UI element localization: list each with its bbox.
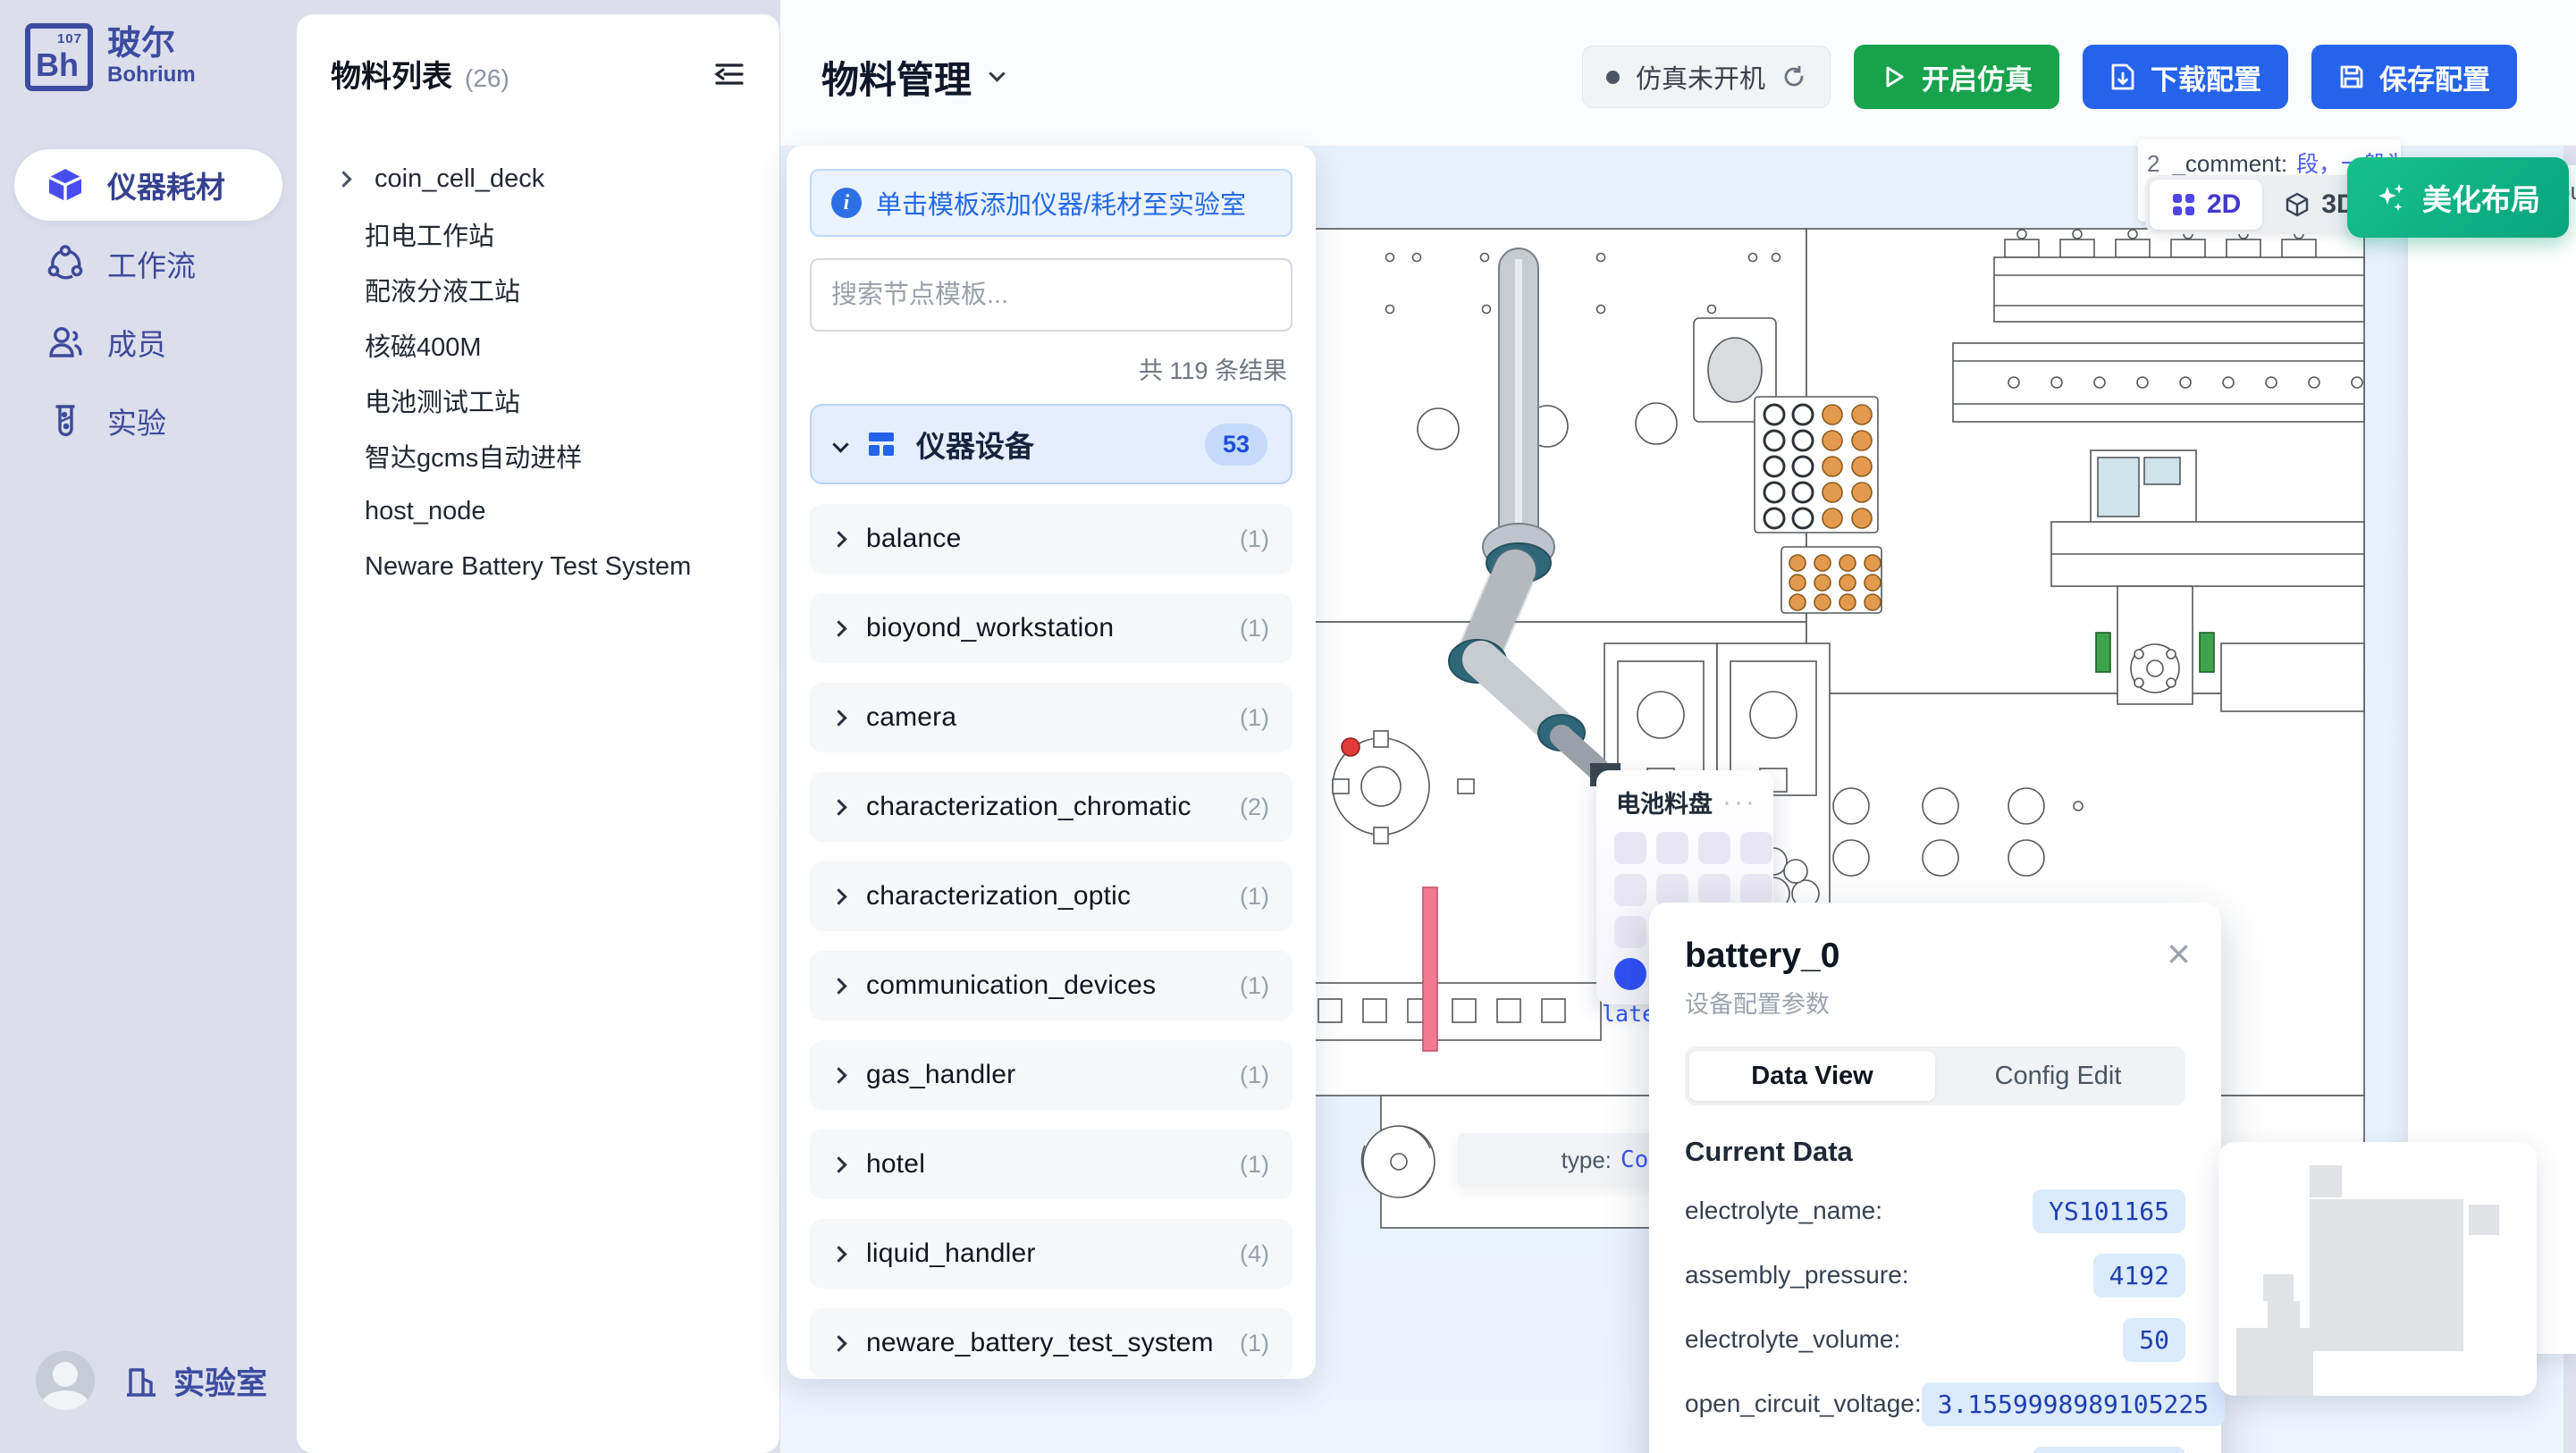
template-item-hotel[interactable]: hotel (1)	[810, 1130, 1292, 1199]
chevron-right-icon	[830, 978, 846, 994]
popup-tabs: Data View Config Edit	[1685, 1046, 2185, 1105]
template-count: (1)	[1240, 1151, 1269, 1179]
template-item-balance[interactable]: balance (1)	[810, 504, 1292, 574]
chevron-right-icon	[830, 620, 846, 636]
tab-config-edit[interactable]: Config Edit	[1935, 1051, 2181, 1101]
minimap-block	[2263, 1274, 2294, 1301]
material-item[interactable]: Neware Battery Test System	[331, 539, 745, 594]
brand-name-zh: 玻尔	[107, 27, 196, 63]
template-item-bioyond-workstation[interactable]: bioyond_workstation (1)	[810, 593, 1292, 663]
tooltip-line-number: 2	[2147, 150, 2159, 177]
template-name: camera	[866, 702, 956, 733]
sidebar-nav: 仪器耗材 工作流 成员 实验	[14, 149, 282, 464]
field-value: YS101165	[2033, 1189, 2185, 1233]
sparkles-icon	[2376, 181, 2408, 214]
template-item-characterization-optic[interactable]: characterization_optic (1)	[810, 861, 1292, 931]
template-search-input[interactable]	[810, 258, 1292, 332]
template-item-camera[interactable]: camera (1)	[810, 683, 1292, 752]
sidebar-item-workflow[interactable]: 工作流	[14, 228, 282, 299]
simulation-status-badge: 仿真未开机	[1582, 46, 1831, 108]
material-item[interactable]: 电池测试工站	[331, 373, 745, 428]
chevron-right-icon	[830, 1335, 846, 1351]
template-name: bioyond_workstation	[866, 613, 1114, 643]
template-count: (4)	[1240, 1240, 1269, 1268]
chevron-right-icon	[830, 888, 846, 904]
template-name: communication_devices	[866, 970, 1156, 1001]
cube-icon	[46, 166, 84, 204]
save-icon	[2338, 63, 2365, 90]
status-dot-icon	[1606, 71, 1620, 84]
template-name: hotel	[866, 1149, 925, 1180]
tray-slot[interactable]	[1614, 916, 1646, 948]
materials-panel: 物料列表 (26) coin_cell_deck 扣电工作站 配液分液工站 核磁…	[297, 14, 779, 1453]
play-icon	[1881, 63, 1907, 90]
download-config-button[interactable]: 下载配置	[2083, 45, 2288, 109]
view-2d-tab[interactable]: 2D	[2150, 180, 2262, 230]
template-name: balance	[866, 524, 962, 554]
material-item-label: 核磁400M	[365, 326, 482, 364]
result-count: 共 119 条结果	[810, 351, 1292, 386]
template-item-neware-battery-test-system[interactable]: neware_battery_test_system (1)	[810, 1308, 1292, 1378]
tray-slot[interactable]	[1698, 874, 1730, 906]
collapse-panel-icon[interactable]	[713, 58, 745, 90]
logo-number: 107	[57, 31, 82, 46]
tray-slot[interactable]	[1740, 832, 1772, 864]
download-file-icon	[2109, 63, 2136, 91]
materials-list: coin_cell_deck 扣电工作站 配液分液工站 核磁400M 电池测试工…	[331, 151, 745, 594]
chevron-right-icon	[830, 710, 846, 726]
material-item[interactable]: host_node	[331, 483, 745, 539]
app-root: { "colors": { "accent_blue": "#2563eb", …	[0, 0, 2576, 1453]
template-name: gas_handler	[866, 1060, 1015, 1090]
field-label: assembly_pressure:	[1685, 1261, 1909, 1289]
view-mode-toggle: 2D 3D	[2145, 175, 2382, 234]
sidebar-item-label: 工作流	[107, 242, 196, 285]
bohrium-element-icon: 107 Bh	[25, 23, 93, 91]
data-field-row: assembly_pressure: 4192	[1685, 1254, 2185, 1297]
building-icon	[123, 1364, 159, 1399]
material-item[interactable]: 智达gcms自动进样	[331, 428, 745, 483]
close-icon[interactable]: ×	[2167, 933, 2191, 974]
workflow-icon	[46, 245, 84, 282]
template-count: (1)	[1240, 883, 1269, 911]
chevron-right-icon	[830, 799, 846, 815]
members-icon	[46, 323, 84, 361]
field-value: 50	[2123, 1318, 2185, 1362]
current-data-heading: Current Data	[1685, 1136, 2185, 1168]
field-value: LG000014	[2033, 1447, 2185, 1453]
sidebar-item-label: 仪器耗材	[107, 164, 225, 206]
start-simulation-button[interactable]: 开启仿真	[1854, 45, 2059, 109]
minimap-block	[2236, 1328, 2313, 1396]
material-item-label: coin_cell_deck	[375, 164, 544, 194]
template-item-liquid-handler[interactable]: liquid_handler (4)	[810, 1219, 1292, 1289]
brand-name-en: Bohrium	[107, 63, 196, 88]
field-label: open_circuit_voltage:	[1685, 1390, 1922, 1418]
sidebar-item-instruments[interactable]: 仪器耗材	[14, 149, 282, 221]
data-field-row: open_circuit_voltage: 3.1559998989105225	[1685, 1382, 2185, 1425]
type-tooltip: type: Coi	[1457, 1133, 1664, 1187]
template-palette-panel: i 单击模板添加仪器/耗材至实验室 共 119 条结果 仪器设备 53 bala…	[787, 146, 1316, 1379]
field-label: electrolyte_volume:	[1685, 1325, 1900, 1354]
material-item[interactable]: 扣电工作站	[331, 206, 745, 262]
minimap-block	[2310, 1199, 2463, 1351]
page-title-menu[interactable]: 物料管理	[821, 50, 1003, 105]
status-text: 仿真未开机	[1636, 58, 1765, 96]
data-field-row: electrolyte_volume: 50	[1685, 1318, 2185, 1361]
cube-3d-icon	[2284, 191, 2311, 218]
save-config-button[interactable]: 保存配置	[2311, 45, 2517, 109]
lab-switcher[interactable]: 实验室	[123, 1358, 267, 1404]
material-item-label: 配液分液工站	[365, 271, 520, 308]
chevron-down-icon	[832, 436, 848, 452]
layout-grid-icon	[866, 429, 897, 459]
minimap[interactable]	[2218, 1142, 2537, 1396]
palette-hint-banner: i 单击模板添加仪器/耗材至实验室	[810, 169, 1292, 237]
header-actions: 仿真未开机 开启仿真 下载配置 保存配置	[1582, 45, 2517, 109]
tray-slot[interactable]	[1740, 874, 1772, 906]
template-name: characterization_chromatic	[866, 792, 1191, 822]
materials-title: 物料列表	[331, 52, 452, 96]
chevron-right-icon	[830, 1156, 846, 1172]
template-item-communication-devices[interactable]: communication_devices (1)	[810, 951, 1292, 1020]
template-count: (1)	[1240, 704, 1269, 732]
template-name: liquid_handler	[866, 1239, 1036, 1269]
data-field-row: electrolyte_name: YS101165	[1685, 1189, 2185, 1232]
template-count: (1)	[1240, 615, 1269, 643]
sidebar-item-members[interactable]: 成员	[14, 307, 282, 378]
template-name: characterization_optic	[866, 881, 1131, 911]
tray-slot[interactable]	[1656, 874, 1688, 906]
tooltip-key: _comment:	[2172, 150, 2287, 177]
template-count: (1)	[1240, 1330, 1269, 1357]
field-label: electrolyte_name:	[1685, 1197, 1882, 1225]
tray-slot[interactable]	[1614, 874, 1646, 906]
chevron-right-icon	[335, 171, 351, 187]
brand-logo[interactable]: 107 Bh 玻尔 Bohrium	[25, 23, 196, 91]
app-sidebar: 107 Bh 玻尔 Bohrium 仪器耗材 工作流	[0, 0, 297, 1453]
save-config-label: 保存配置	[2379, 57, 2490, 97]
device-config-popup: battery_0 × 设备配置参数 Data View Config Edit…	[1649, 903, 2221, 1453]
template-count: (1)	[1240, 972, 1269, 1000]
logo-symbol: Bh	[36, 46, 79, 84]
material-item[interactable]: coin_cell_deck	[331, 151, 745, 206]
start-simulation-label: 开启仿真	[1922, 57, 2033, 97]
category-count-badge: 53	[1205, 424, 1267, 466]
sidebar-item-experiments[interactable]: 实验	[14, 385, 282, 457]
sidebar-item-label: 实验	[107, 399, 166, 442]
template-count: (1)	[1240, 1062, 1269, 1089]
lab-label: 实验室	[173, 1358, 267, 1404]
chevron-right-icon	[830, 531, 846, 547]
tray-slot[interactable]	[1698, 832, 1730, 864]
popup-title: battery_0	[1685, 936, 2185, 976]
info-icon: i	[831, 188, 862, 218]
material-item[interactable]: 核磁400M	[331, 317, 745, 373]
chevron-down-icon	[989, 65, 1005, 81]
material-item-label: host_node	[365, 497, 485, 526]
download-config-label: 下载配置	[2151, 57, 2261, 97]
tray-slot-selected[interactable]	[1614, 958, 1646, 990]
tab-data-view[interactable]: Data View	[1689, 1051, 1935, 1101]
test-tube-icon	[46, 402, 84, 440]
avatar[interactable]	[36, 1351, 95, 1410]
beautify-layout-label: 美化布局	[2422, 176, 2540, 219]
field-value: 3.1559998989105225	[1922, 1382, 2225, 1426]
template-count: (2)	[1240, 794, 1269, 821]
data-field-row: data_electrolyte_code: LG000014	[1685, 1447, 2185, 1453]
view-2d-label: 2D	[2207, 189, 2241, 220]
chevron-right-icon	[830, 1067, 846, 1083]
category-instruments[interactable]: 仪器设备 53	[810, 404, 1292, 484]
refresh-icon[interactable]	[1781, 64, 1806, 89]
palette-hint-text: 单击模板添加仪器/耗材至实验室	[876, 184, 1246, 222]
template-item-characterization-chromatic[interactable]: characterization_chromatic (2)	[810, 772, 1292, 842]
material-item[interactable]: 配液分液工站	[331, 262, 745, 317]
minimap-block	[2469, 1205, 2499, 1235]
template-count: (1)	[1240, 525, 1269, 553]
sidebar-item-label: 成员	[107, 321, 166, 364]
minimap-block	[2310, 1165, 2342, 1197]
material-item-label: 扣电工作站	[365, 215, 494, 253]
category-label: 仪器设备	[916, 423, 1034, 466]
material-item-label: 电池测试工站	[365, 382, 520, 419]
field-value: 4192	[2093, 1254, 2185, 1298]
tray-slot[interactable]	[1656, 832, 1688, 864]
template-item-gas-handler[interactable]: gas_handler (1)	[810, 1040, 1292, 1110]
more-menu-icon[interactable]: ···	[1722, 798, 1757, 807]
battery-tray-title: 电池料盘	[1616, 785, 1713, 819]
type-tooltip-key: type:	[1562, 1146, 1612, 1174]
materials-count: (26)	[465, 64, 509, 93]
material-item-label: 智达gcms自动进样	[365, 437, 582, 475]
grid-2d-icon	[2171, 192, 2196, 217]
chevron-right-icon	[830, 1246, 846, 1262]
popup-subtitle: 设备配置参数	[1685, 985, 2185, 1020]
sidebar-footer: 实验室	[0, 1348, 297, 1419]
tray-slot[interactable]	[1614, 832, 1646, 864]
template-name: neware_battery_test_system	[866, 1328, 1214, 1358]
beautify-layout-button[interactable]: 美化布局	[2347, 157, 2569, 238]
page-title: 物料管理	[821, 50, 972, 105]
material-item-label: Neware Battery Test System	[365, 552, 691, 582]
